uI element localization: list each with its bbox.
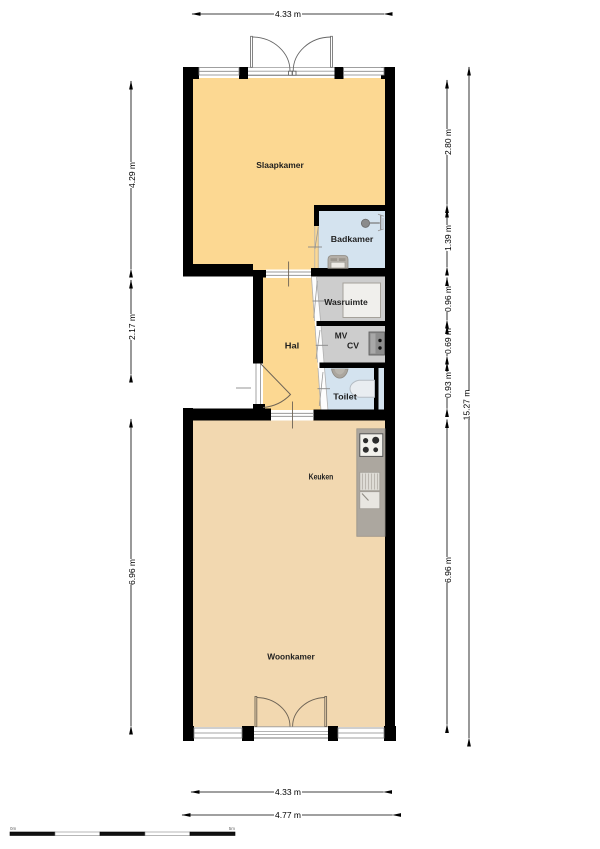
svg-text:6.96 m: 6.96 m xyxy=(127,559,137,585)
svg-text:15.27 m: 15.27 m xyxy=(462,390,472,421)
svg-text:0.96 m: 0.96 m xyxy=(443,286,453,312)
svg-text:4.33 m: 4.33 m xyxy=(275,9,301,19)
svg-text:0.69 m: 0.69 m xyxy=(443,328,453,354)
svg-text:5m: 5m xyxy=(229,826,236,831)
svg-text:0m: 0m xyxy=(10,826,17,831)
svg-text:2.80 m: 2.80 m xyxy=(443,129,453,155)
svg-text:6.96 m: 6.96 m xyxy=(443,557,453,583)
svg-text:2.17 m: 2.17 m xyxy=(127,314,137,340)
svg-text:0.93 m: 0.93 m xyxy=(443,372,453,398)
svg-text:1.39 m: 1.39 m xyxy=(443,225,453,251)
svg-text:Badkamer: Badkamer xyxy=(331,234,374,244)
svg-text:4.33 m: 4.33 m xyxy=(275,787,301,797)
svg-text:MV: MV xyxy=(335,331,348,341)
svg-text:Wasruimte: Wasruimte xyxy=(324,297,368,307)
svg-text:Keuken: Keuken xyxy=(309,472,334,482)
svg-text:Slaapkamer: Slaapkamer xyxy=(256,160,304,170)
svg-text:Hal: Hal xyxy=(285,341,300,351)
svg-text:4.29 m: 4.29 m xyxy=(127,162,137,188)
svg-text:Toilet: Toilet xyxy=(333,392,357,402)
svg-text:Woonkamer: Woonkamer xyxy=(267,652,315,662)
svg-text:CV: CV xyxy=(347,341,359,351)
svg-text:4.77 m: 4.77 m xyxy=(275,810,301,820)
